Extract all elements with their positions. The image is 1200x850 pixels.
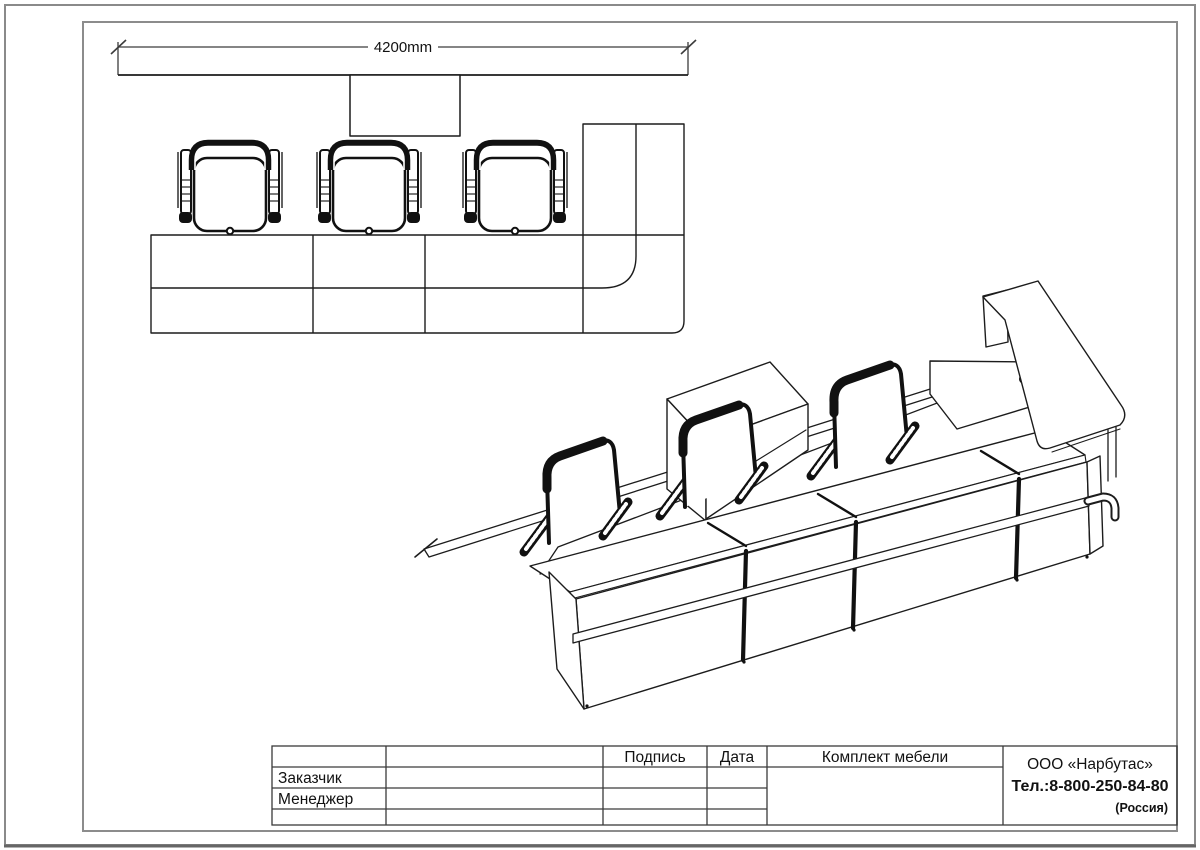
plan-view: 4200mm bbox=[111, 39, 696, 333]
date-header: Дата bbox=[720, 749, 755, 766]
plan-chair-3 bbox=[463, 143, 567, 234]
iso-view bbox=[415, 281, 1125, 709]
title-block: Подпись Дата Комплект мебели Заказчик Ме… bbox=[272, 746, 1177, 825]
set-header: Комплект мебели bbox=[822, 749, 948, 766]
wall-cabinet-box bbox=[350, 75, 460, 136]
company-country: (Россия) bbox=[1115, 801, 1168, 815]
plan-counter-inner-edge bbox=[151, 235, 636, 288]
row-label-manager: Менеджер bbox=[278, 791, 353, 808]
company-phone: Тел.:8-800-250-84-80 bbox=[1011, 778, 1168, 795]
drawing-canvas: 4200mm bbox=[0, 0, 1200, 850]
plan-chair-1 bbox=[178, 143, 282, 234]
signature-header: Подпись bbox=[624, 749, 685, 766]
drawing-sheet: 4200mm bbox=[0, 0, 1200, 850]
company-name: ООО «Нарбутас» bbox=[1027, 756, 1153, 773]
plan-chair-2 bbox=[317, 143, 421, 234]
company-block: ООО «Нарбутас» Тел.:8-800-250-84-80 (Рос… bbox=[1011, 756, 1168, 815]
dimension-label: 4200mm bbox=[374, 39, 432, 56]
row-label-customer: Заказчик bbox=[278, 770, 342, 787]
